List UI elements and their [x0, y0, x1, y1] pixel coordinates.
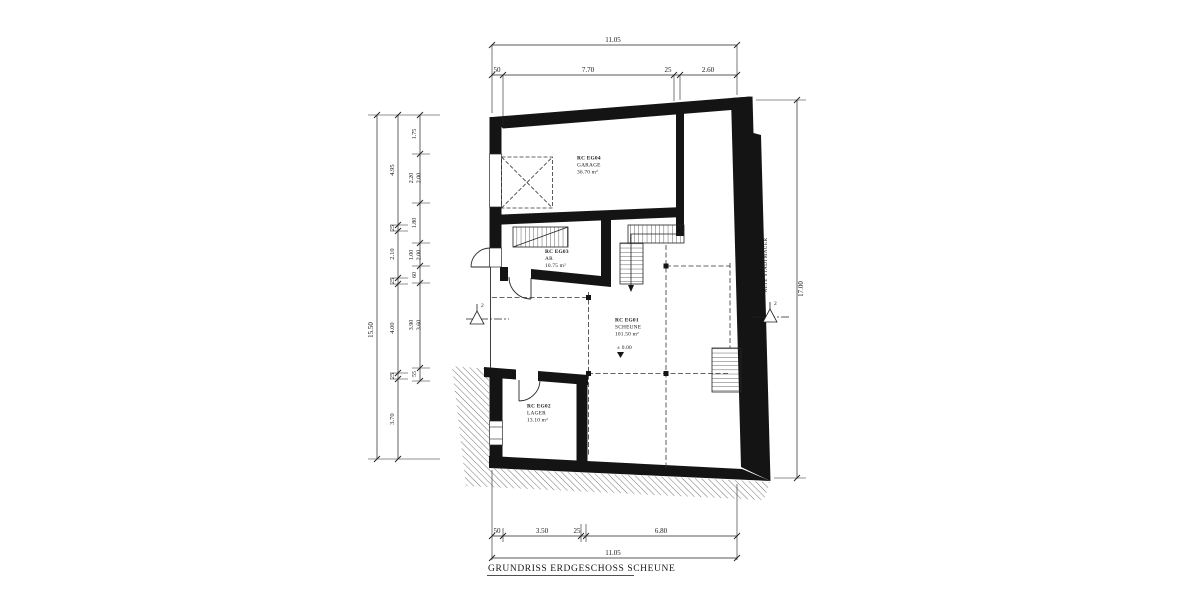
sheet-title: GRUNDRISS ERDGESCHOSS SCHEUNE	[487, 564, 675, 576]
garage-right-wall	[676, 107, 684, 236]
stair-mid-run-b	[620, 243, 643, 284]
dim-top-total: 11.05	[605, 36, 621, 44]
room-scheune-id: RC EG01	[615, 318, 639, 324]
post	[586, 371, 591, 376]
ar-bottom-wall	[531, 269, 611, 287]
floor-plan-drawing: 2 2 11.05 50 7.70 25 2.60 50 3.50 25 6.8…	[0, 0, 1200, 600]
room-lager-id: RC EG02	[527, 404, 551, 410]
dim-left-mid0: 4.95	[389, 164, 396, 175]
ar-door-stub	[500, 267, 508, 281]
page-title: GRUNDRISS ERDGESCHOSS SCHEUNE	[488, 564, 675, 574]
room-ar-area: 10.75 m²	[545, 263, 566, 269]
dim-left-mid1: 25	[389, 225, 396, 232]
dim-top-seg2: 25	[665, 66, 673, 74]
lager-left-wall-a	[490, 377, 503, 421]
dim-bot-seg1: 3.50	[536, 527, 549, 535]
dim-left-mid6: 3.70	[389, 413, 396, 424]
lager-door-arc	[519, 380, 540, 401]
dim-top-seg3: 2.60	[702, 66, 715, 74]
dim-left-in3: 1.80	[412, 218, 418, 229]
section-label-right: 2	[774, 301, 777, 307]
left-wall-upper	[490, 117, 502, 154]
dim-left-in1: 2.20	[409, 173, 415, 184]
dim-top-seg1: 7.70	[582, 66, 595, 74]
dim-right-total: 17.00	[797, 281, 805, 297]
entry-door-opening	[490, 248, 502, 267]
dim-bot-total: 11.05	[605, 549, 621, 557]
left-wall-mid	[490, 207, 502, 248]
dim-left-in9: 55	[412, 371, 418, 377]
dim-left-in2: 2.00	[417, 173, 423, 184]
room-ar-id: RC EG03	[545, 249, 569, 255]
dim-top-seg0: 50	[494, 66, 502, 74]
dim-left-in5: 2.00	[417, 250, 423, 261]
entry-door-arc	[471, 248, 490, 267]
floor-plan-sheet: 2 2 11.05 50 7.70 25 2.60 50 3.50 25 6.8…	[0, 0, 1200, 600]
room-scheune-area: 101.50 m²	[615, 332, 639, 338]
dim-left-in4: 1.00	[409, 250, 415, 261]
room-garage-id: RC EG04	[577, 156, 601, 162]
level-marker-icon	[617, 352, 624, 358]
dimensions-left: 15.50 4.95 25 2.10 25 4.00 25 3.70 1.75 …	[367, 129, 423, 425]
room-lager-name: LAGER	[527, 411, 546, 417]
dim-left-mid3: 25	[389, 278, 396, 285]
post	[664, 371, 669, 376]
dim-bot-seg2: 25	[574, 527, 582, 535]
lager-right-wall	[577, 377, 588, 463]
lager-left-wall-b	[490, 445, 503, 462]
garage-door-opening	[490, 154, 502, 207]
dimensions-bottom: 50 3.50 25 6.80 11.05	[494, 527, 668, 557]
section-triangle-left	[470, 311, 484, 324]
stair-direction-arrow	[628, 285, 634, 292]
dim-left-in8: 3.60	[417, 320, 423, 331]
city-wall-label: ALTE STADTMAUER	[764, 237, 769, 292]
dim-left-in7: 3.90	[409, 320, 415, 331]
post	[586, 295, 591, 300]
top-wall	[492, 97, 750, 129]
dim-left-mid2: 2.10	[389, 248, 396, 259]
dim-left-mid5: 25	[389, 373, 396, 380]
ar-right-wall	[601, 220, 611, 282]
dim-bot-seg3: 6.80	[655, 527, 668, 535]
section-label-left: 2	[481, 303, 484, 309]
dim-left-in6: 60	[412, 272, 418, 278]
garage-skylight-x	[502, 157, 553, 208]
room-lager-area: 13.10 m²	[527, 418, 548, 424]
dim-left-mid4: 4.00	[389, 322, 396, 333]
room-garage-area: 36.70 m²	[577, 170, 598, 176]
stair-east	[712, 348, 741, 392]
room-ar-name: AR	[545, 256, 553, 262]
dim-left-in0: 1.75	[412, 129, 418, 140]
post	[664, 264, 669, 269]
lager-window-opening	[490, 421, 503, 445]
dim-bot-seg0: 50	[494, 527, 502, 535]
dim-left-total: 15.50	[367, 322, 375, 338]
room-scheune-name: SCHEUNE	[615, 325, 642, 331]
room-garage-name: GARAGE	[577, 163, 601, 169]
dimensions-top: 11.05 50 7.70 25 2.60	[494, 36, 715, 74]
garage-bottom-wall	[490, 207, 685, 225]
room-scheune-level: ± 0.00	[617, 345, 632, 351]
ar-door-arc	[509, 277, 531, 299]
